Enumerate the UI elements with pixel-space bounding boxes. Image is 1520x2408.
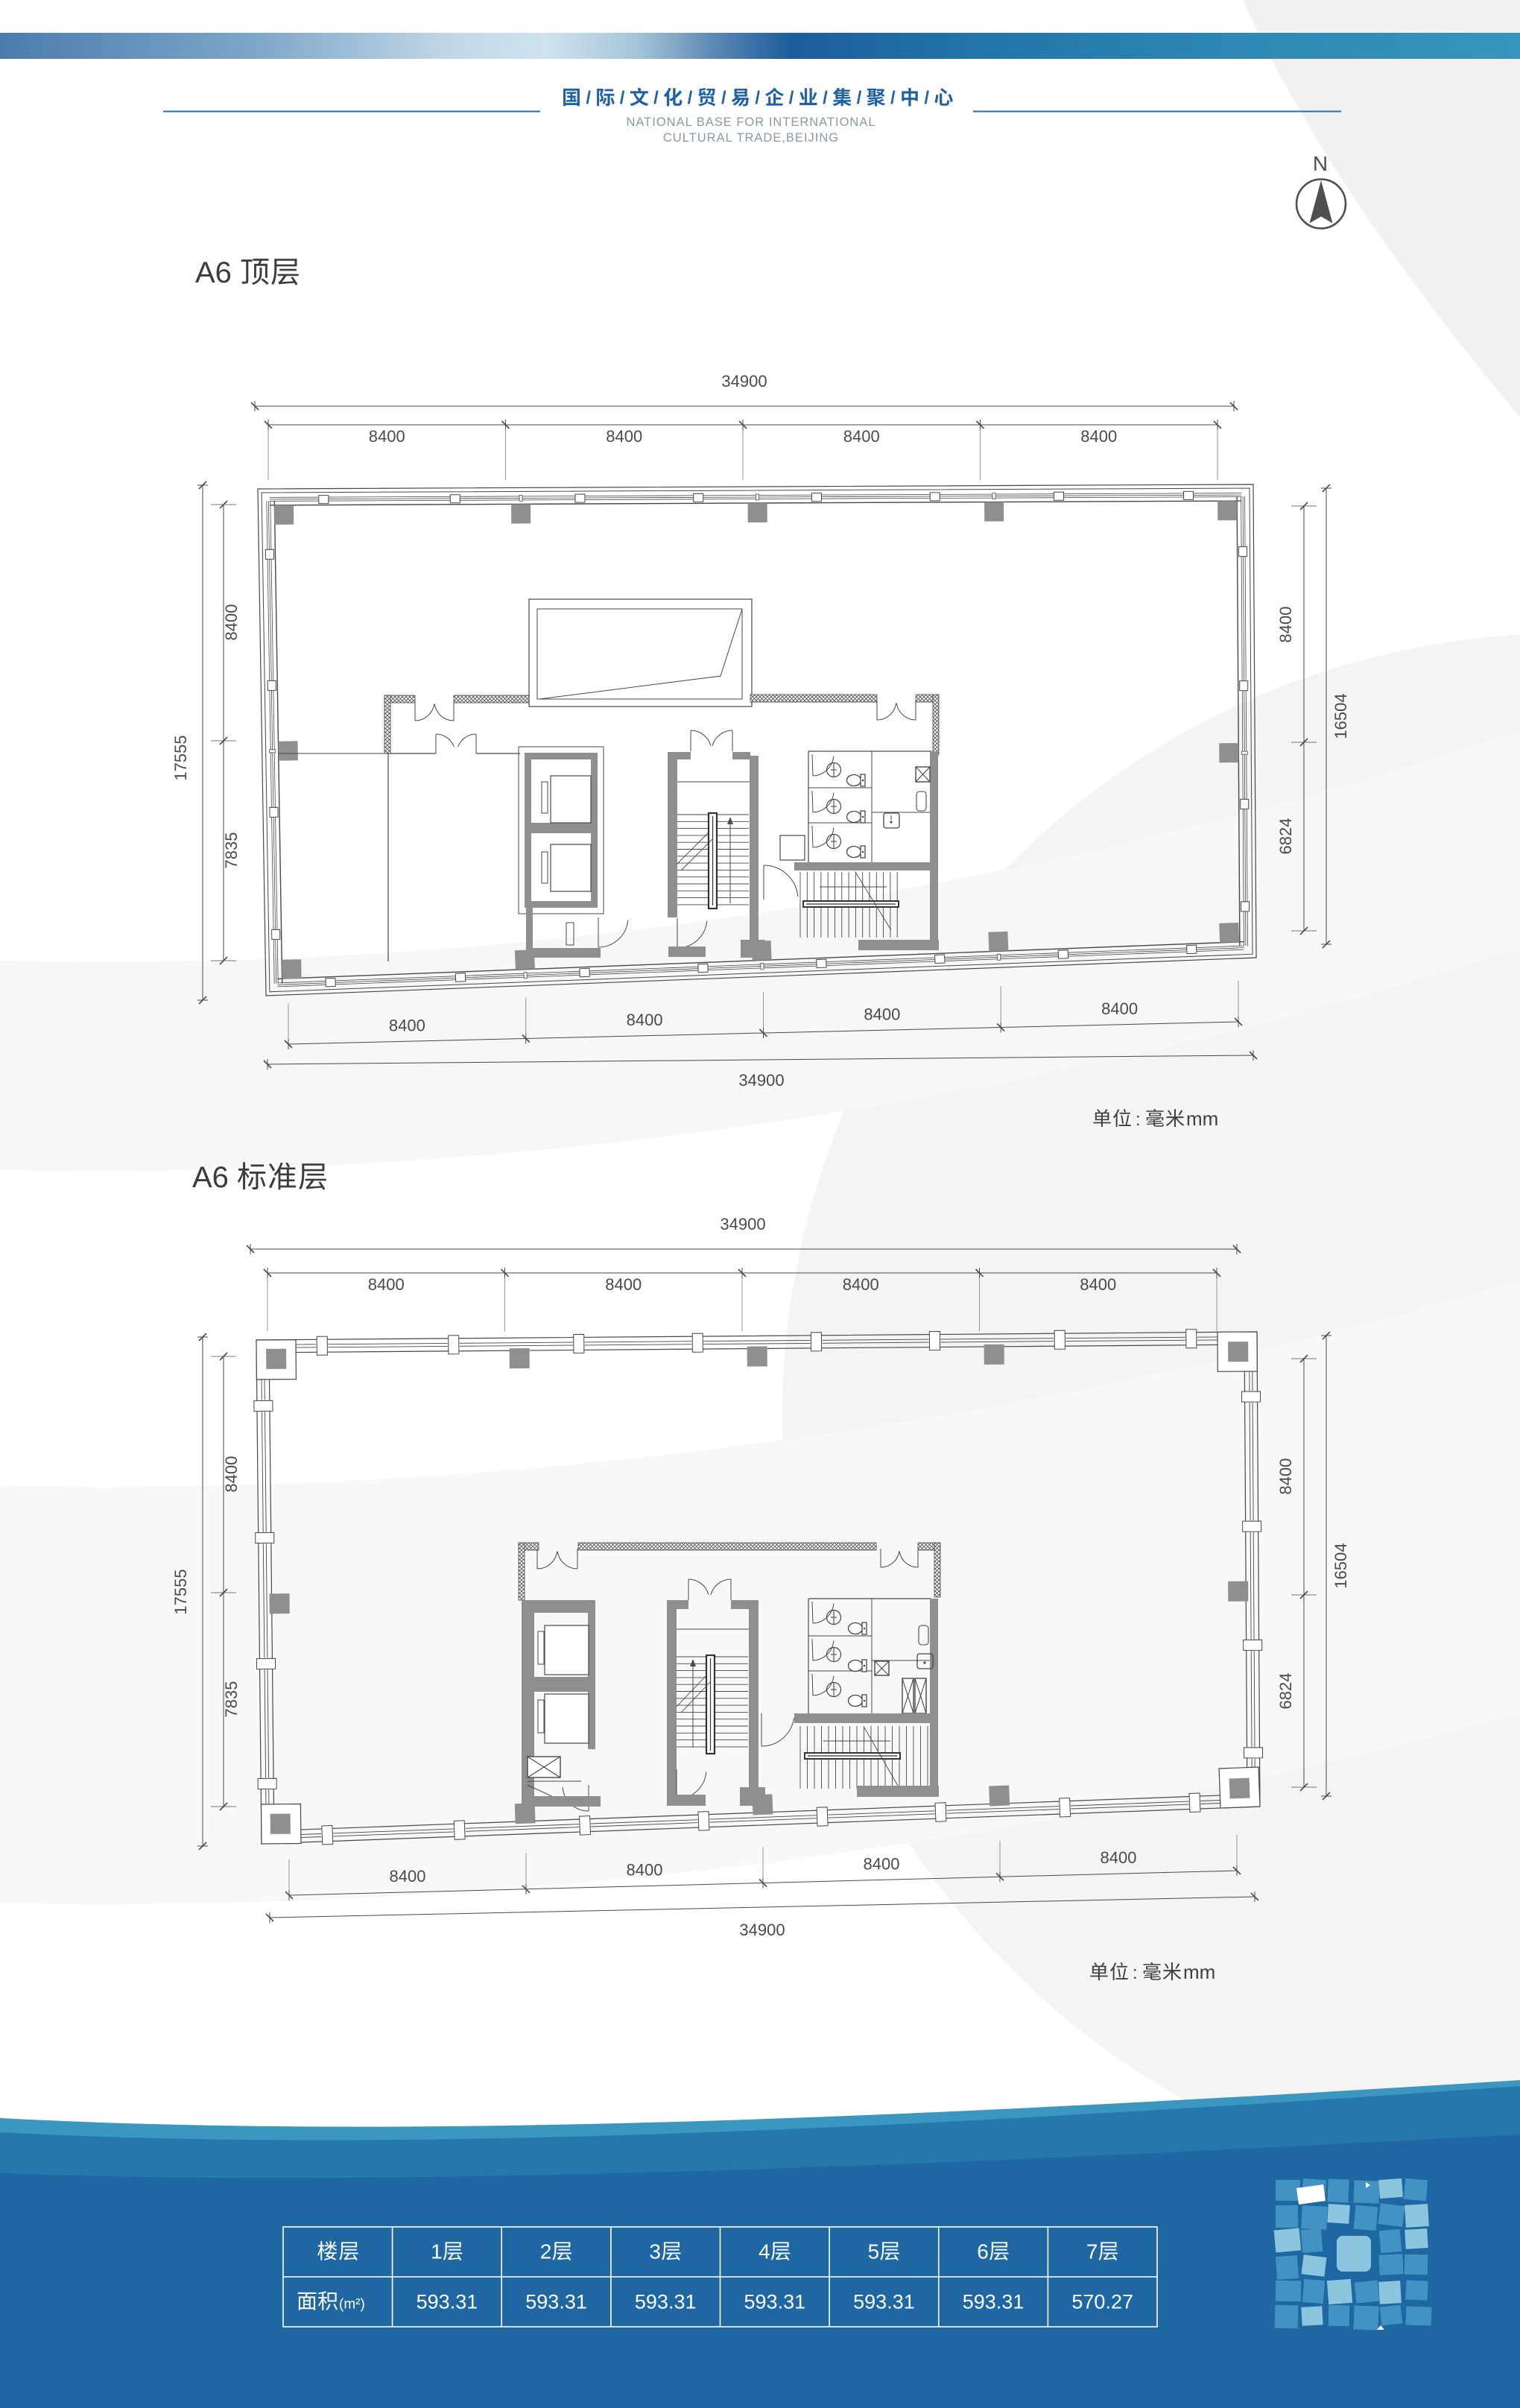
svg-text:8400: 8400 <box>369 427 405 446</box>
svg-text:8400: 8400 <box>627 1861 663 1880</box>
svg-text:/: / <box>857 88 862 108</box>
svg-text::: : <box>1133 1963 1138 1983</box>
svg-text:2: 2 <box>540 2240 552 2263</box>
svg-text:34900: 34900 <box>721 372 767 391</box>
svg-text:8400: 8400 <box>1080 427 1117 446</box>
svg-text:17555: 17555 <box>171 1569 190 1614</box>
svg-text:A6: A6 <box>195 256 232 289</box>
svg-text:8400: 8400 <box>222 1456 241 1493</box>
svg-text:/: / <box>823 88 828 108</box>
svg-text:8400: 8400 <box>864 1854 900 1873</box>
svg-text:8400: 8400 <box>1080 1275 1116 1294</box>
svg-text:8400: 8400 <box>864 1005 900 1023</box>
svg-text:/: / <box>688 88 693 108</box>
svg-text:593.31: 593.31 <box>635 2291 697 2313</box>
svg-text:8400: 8400 <box>222 604 241 641</box>
svg-text:593.31: 593.31 <box>417 2291 478 2313</box>
svg-text:/: / <box>890 88 896 108</box>
svg-text:NATIONAL BASE FOR INTERNATIONA: NATIONAL BASE FOR INTERNATIONAL <box>626 116 875 129</box>
svg-text:/: / <box>586 88 591 108</box>
svg-text:34900: 34900 <box>739 1921 785 1939</box>
svg-text:mm: mm <box>1183 1961 1215 1983</box>
svg-text:/: / <box>755 88 760 108</box>
svg-text:/: / <box>620 88 625 108</box>
svg-text:3: 3 <box>649 2240 661 2263</box>
svg-text:7: 7 <box>1086 2240 1098 2263</box>
svg-text:/: / <box>721 88 726 108</box>
svg-text:5: 5 <box>868 2240 880 2263</box>
svg-text:8400: 8400 <box>1276 607 1295 643</box>
svg-text:8400: 8400 <box>605 1275 642 1294</box>
svg-text::: : <box>1136 1110 1141 1130</box>
svg-text:8400: 8400 <box>390 1867 426 1886</box>
svg-text:8400: 8400 <box>843 1275 879 1294</box>
svg-text:6824: 6824 <box>1276 1673 1295 1710</box>
svg-text:1: 1 <box>431 2240 443 2263</box>
svg-text:8400: 8400 <box>606 427 642 446</box>
svg-text:16504: 16504 <box>1331 693 1350 739</box>
svg-text:4: 4 <box>759 2240 770 2263</box>
svg-text:6824: 6824 <box>1276 818 1295 855</box>
svg-text:593.31: 593.31 <box>963 2291 1025 2313</box>
svg-text:8400: 8400 <box>389 1016 425 1034</box>
svg-text:8400: 8400 <box>1101 1848 1137 1867</box>
svg-text:CULTURAL TRADE,BEIJING: CULTURAL TRADE,BEIJING <box>663 131 839 145</box>
svg-text:7835: 7835 <box>222 1681 241 1718</box>
svg-text:8400: 8400 <box>1276 1459 1295 1495</box>
svg-text:593.31: 593.31 <box>525 2291 587 2313</box>
svg-text:8400: 8400 <box>368 1275 405 1294</box>
svg-text:593.31: 593.31 <box>853 2291 915 2313</box>
svg-text:34900: 34900 <box>720 1215 765 1233</box>
svg-text:A6: A6 <box>192 1161 229 1194</box>
svg-text:/: / <box>653 88 659 108</box>
svg-text:7835: 7835 <box>222 832 241 869</box>
svg-text:6: 6 <box>977 2240 989 2263</box>
svg-text:570.27: 570.27 <box>1071 2291 1133 2313</box>
svg-text:N: N <box>1313 152 1328 175</box>
svg-text:(m²): (m²) <box>339 2297 365 2313</box>
svg-text:mm: mm <box>1186 1107 1218 1130</box>
svg-text:16504: 16504 <box>1331 1543 1350 1588</box>
svg-text:34900: 34900 <box>738 1071 784 1090</box>
svg-text:8400: 8400 <box>627 1011 663 1029</box>
svg-text:/: / <box>924 88 929 108</box>
svg-text:17555: 17555 <box>171 735 190 780</box>
svg-text:/: / <box>789 88 794 108</box>
svg-text:593.31: 593.31 <box>744 2291 806 2313</box>
svg-text:8400: 8400 <box>1101 999 1138 1018</box>
svg-text:8400: 8400 <box>843 427 880 446</box>
